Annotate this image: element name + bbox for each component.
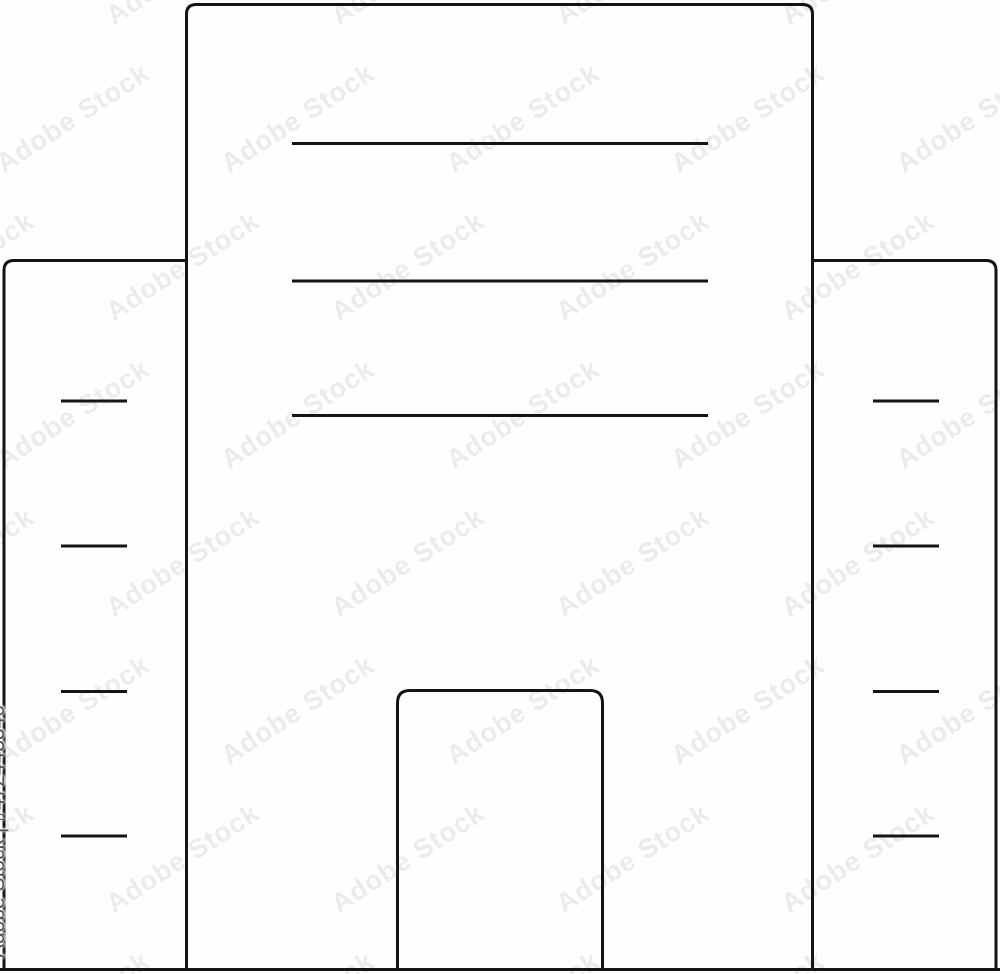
building-outline-group xyxy=(0,5,1000,971)
main-tower-outline xyxy=(187,5,813,971)
building-icon xyxy=(0,0,1000,974)
right-wing-outline xyxy=(814,261,996,971)
door-outline xyxy=(398,691,603,971)
left-wing-outline xyxy=(4,261,185,971)
stock-image-canvas: Adobe StockAdobe StockAdobe StockAdobe S… xyxy=(0,0,1000,974)
stock-id-watermark: Adobe Stock | #472443340 xyxy=(0,705,10,958)
